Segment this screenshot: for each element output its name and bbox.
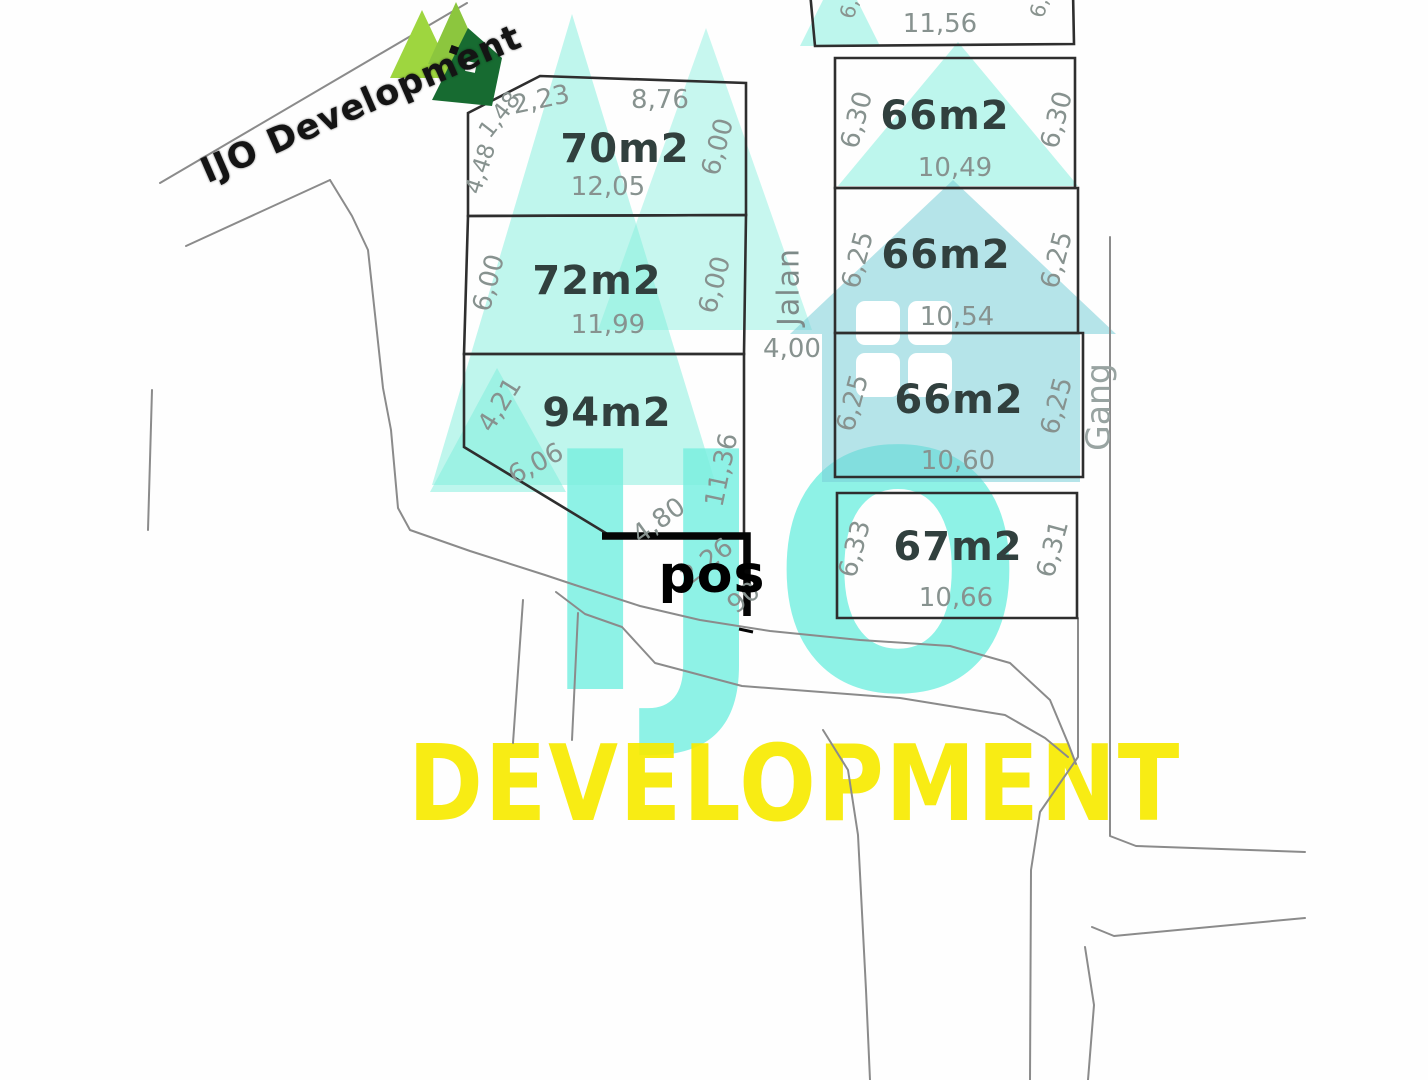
dim-66c-bottom: 10,60	[921, 446, 995, 476]
plot-70-area-label: 70m2	[560, 126, 689, 172]
road-width-label: 4,00	[763, 334, 821, 364]
plot-94-area-label: 94m2	[542, 390, 671, 436]
road-line	[1092, 918, 1305, 936]
watermark-window-icon	[856, 301, 900, 345]
dim-67-bottom: 10,66	[919, 583, 993, 613]
road-line	[1085, 947, 1094, 1080]
dim-66a-bottom: 10,49	[918, 153, 992, 183]
dim-72-bottom: 11,99	[571, 310, 645, 340]
plot-67-area-label: 67m2	[893, 524, 1022, 570]
alley-gang-label: Gang	[1079, 363, 1118, 451]
dim-70-bottom: 12,05	[571, 172, 645, 202]
pos-tick	[739, 629, 753, 632]
road-line	[823, 730, 870, 1080]
road-line	[513, 600, 523, 743]
road-line	[572, 613, 578, 740]
road-jalan-label: Jalan	[772, 248, 807, 326]
dim-70-top: 8,76	[631, 85, 689, 115]
pos-label: pos	[659, 545, 766, 605]
dim-66b-bottom: 10,54	[920, 302, 994, 332]
plot-66c-area-label: 66m2	[894, 377, 1023, 423]
plot-66b-area-label: 66m2	[881, 232, 1010, 278]
plot-66a-area-label: 66m2	[880, 93, 1009, 139]
road-line	[575, 585, 1076, 764]
road-line	[186, 180, 330, 246]
dim-top-plot-bottom: 11,56	[903, 9, 977, 39]
site-plan-image: IJO DEVELOPMENT	[0, 0, 1428, 1080]
plot-72-area-label: 72m2	[532, 258, 661, 304]
road-line	[148, 390, 152, 530]
road-line	[1110, 237, 1305, 852]
